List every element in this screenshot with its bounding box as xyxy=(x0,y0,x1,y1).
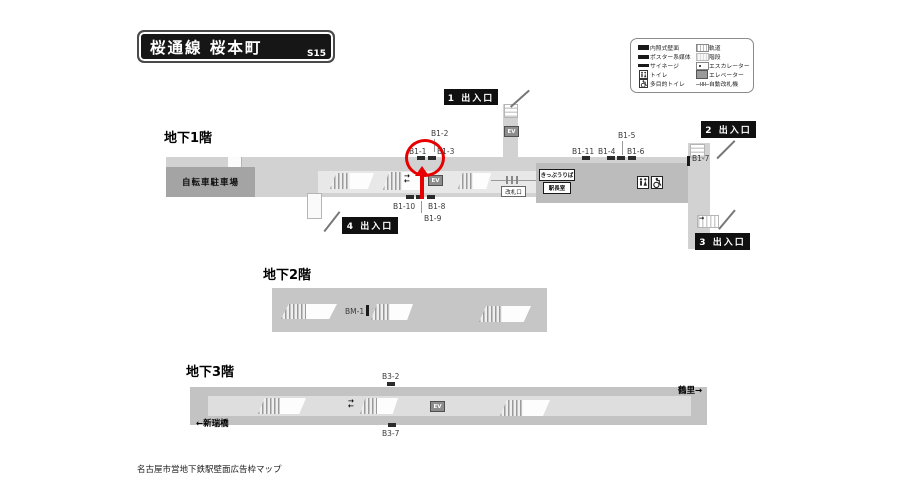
escalator-icon xyxy=(695,62,709,70)
exit-3-label: 3 出入口 xyxy=(695,233,750,250)
stairs-icon xyxy=(258,398,306,414)
legend-item: 軌道 xyxy=(695,43,750,52)
ad-mark-b1-7 xyxy=(687,156,690,166)
ad-label-b3-7: B3-7 xyxy=(382,429,399,438)
legend-item: トイレ xyxy=(636,70,691,79)
exit3-slope-line xyxy=(718,209,735,229)
elevator-box-b1: EV xyxy=(428,175,443,186)
station-title-box: 桜通線 桜本町 S15 xyxy=(137,30,335,63)
station-map-canvas: 桜通線 桜本町 S15 内照式壁面 ポスター系媒体 サイネージ トイレ xyxy=(0,0,919,491)
exit-1-label: 1 出入口 xyxy=(444,89,498,105)
ad-mark-b1-8 xyxy=(427,195,435,199)
illuminated-wall-icon xyxy=(636,45,650,50)
stairs-icon xyxy=(371,304,413,320)
ticket-gate-icon xyxy=(695,81,709,87)
poster-media-icon xyxy=(636,55,650,59)
escalator-arrows-icon: → xyxy=(699,217,704,222)
legend-item: エスカレーター xyxy=(695,61,750,70)
ad-mark-b3-7 xyxy=(388,423,396,427)
ticket-gate-icon xyxy=(506,176,508,184)
stairs-icon xyxy=(330,173,374,189)
floor-label-b2: 地下2階 xyxy=(263,264,311,283)
station-title: 桜通線 桜本町 xyxy=(150,36,262,58)
elevator-icon xyxy=(695,70,709,79)
ad-mark-b1-10 xyxy=(406,195,414,199)
ad-label-b1-11: B1-11 xyxy=(572,147,594,156)
exit-4-label: 4 出入口 xyxy=(342,217,398,234)
stairs-icon xyxy=(695,53,709,61)
ad-mark-b1-5 xyxy=(617,156,625,160)
exit4-corridor xyxy=(307,193,322,219)
elevator-box-exit1: EV xyxy=(504,126,519,137)
bicycle-parking-label: 自転車駐車場 xyxy=(182,176,239,188)
toilet-icon xyxy=(636,70,650,79)
b3-track-bottom xyxy=(190,416,707,425)
floor-label-b1: 地下1階 xyxy=(164,127,212,146)
ticket-gate-line xyxy=(491,180,537,181)
stairs-icon xyxy=(500,400,550,416)
ad-mark-b1-4 xyxy=(607,156,615,160)
ad-mark-b1-11 xyxy=(582,156,590,160)
ad-mark-b1-6 xyxy=(628,156,636,160)
ticket-gate-icon xyxy=(516,176,518,184)
legend-right-column: 軌道 階段 エスカレーター エレベーター 自動改札機 xyxy=(695,43,750,88)
bicycle-parking-area: 自転車駐車場 xyxy=(166,167,255,197)
exit-2-label: 2 出入口 xyxy=(701,121,756,138)
legend-box: 内照式壁面 ポスター系媒体 サイネージ トイレ 多目的トイレ xyxy=(630,38,754,93)
ticket-gate-icon xyxy=(511,176,513,184)
ad-label-bm-1: BM-1 xyxy=(345,307,364,316)
legend-left-column: 内照式壁面 ポスター系媒体 サイネージ トイレ 多目的トイレ xyxy=(636,43,691,88)
ad-label-b1-10: B1-10 xyxy=(393,202,415,211)
b3-track-top xyxy=(190,387,707,396)
station-code-badge: S15 xyxy=(307,49,326,59)
exit2-slope-line xyxy=(716,140,735,159)
legend-item: ポスター系媒体 xyxy=(636,52,691,61)
stairs-icon xyxy=(360,398,398,414)
ad-label-b1-2: B1-2 xyxy=(431,129,448,138)
legend-item: サイネージ xyxy=(636,61,691,70)
legend-item: 自動改札機 xyxy=(695,79,750,88)
stairs-icon xyxy=(479,306,531,322)
station-office-label: 駅長室 xyxy=(543,182,571,194)
leader-line xyxy=(421,201,422,213)
legend-item: エレベーター xyxy=(695,70,750,79)
legend-item: 内照式壁面 xyxy=(636,43,691,52)
escalator-arrows-icon: →← xyxy=(348,399,354,408)
legend-item: 多目的トイレ xyxy=(636,79,691,88)
ad-label-b1-4: B1-4 xyxy=(598,147,615,156)
accessible-toilet-icon xyxy=(651,176,663,189)
escalator-arrows-icon: →← xyxy=(404,174,410,183)
ad-label-b1-7: B1-7 xyxy=(692,154,709,163)
gate-label: 改札口 xyxy=(501,186,526,197)
ad-label-b1-9: B1-9 xyxy=(424,214,441,223)
direction-label-aratamabashi: ←新瑞橋 xyxy=(196,417,229,429)
ad-label-b1-6: B1-6 xyxy=(627,147,644,156)
ad-mark-bm-1 xyxy=(366,305,369,316)
map-caption: 名古屋市営地下鉄駅壁面広告枠マップ xyxy=(137,463,282,475)
signage-icon xyxy=(636,64,650,67)
exit4-slope-line xyxy=(323,211,340,232)
ad-label-b1-8: B1-8 xyxy=(428,202,445,211)
ad-label-b1-5: B1-5 xyxy=(618,131,635,140)
ad-label-b3-2: B3-2 xyxy=(382,372,399,381)
legend-item: 階段 xyxy=(695,52,750,61)
exit1-slope-line xyxy=(510,90,530,108)
accessible-toilet-icon xyxy=(636,79,650,88)
ad-mark-b3-2 xyxy=(387,382,395,386)
highlight-arrow xyxy=(420,175,424,199)
floor-label-b3: 地下3階 xyxy=(186,361,234,380)
leader-line xyxy=(622,141,623,155)
toilet-icon xyxy=(637,176,649,189)
elevator-box-b3: EV xyxy=(430,401,445,412)
direction-label-tsurusato: 鶴里→ xyxy=(678,384,702,396)
stairs-icon xyxy=(458,173,491,189)
ticket-office-label: きっぷうりば xyxy=(539,169,575,181)
stairs-icon xyxy=(281,304,337,319)
track-icon xyxy=(695,44,709,52)
